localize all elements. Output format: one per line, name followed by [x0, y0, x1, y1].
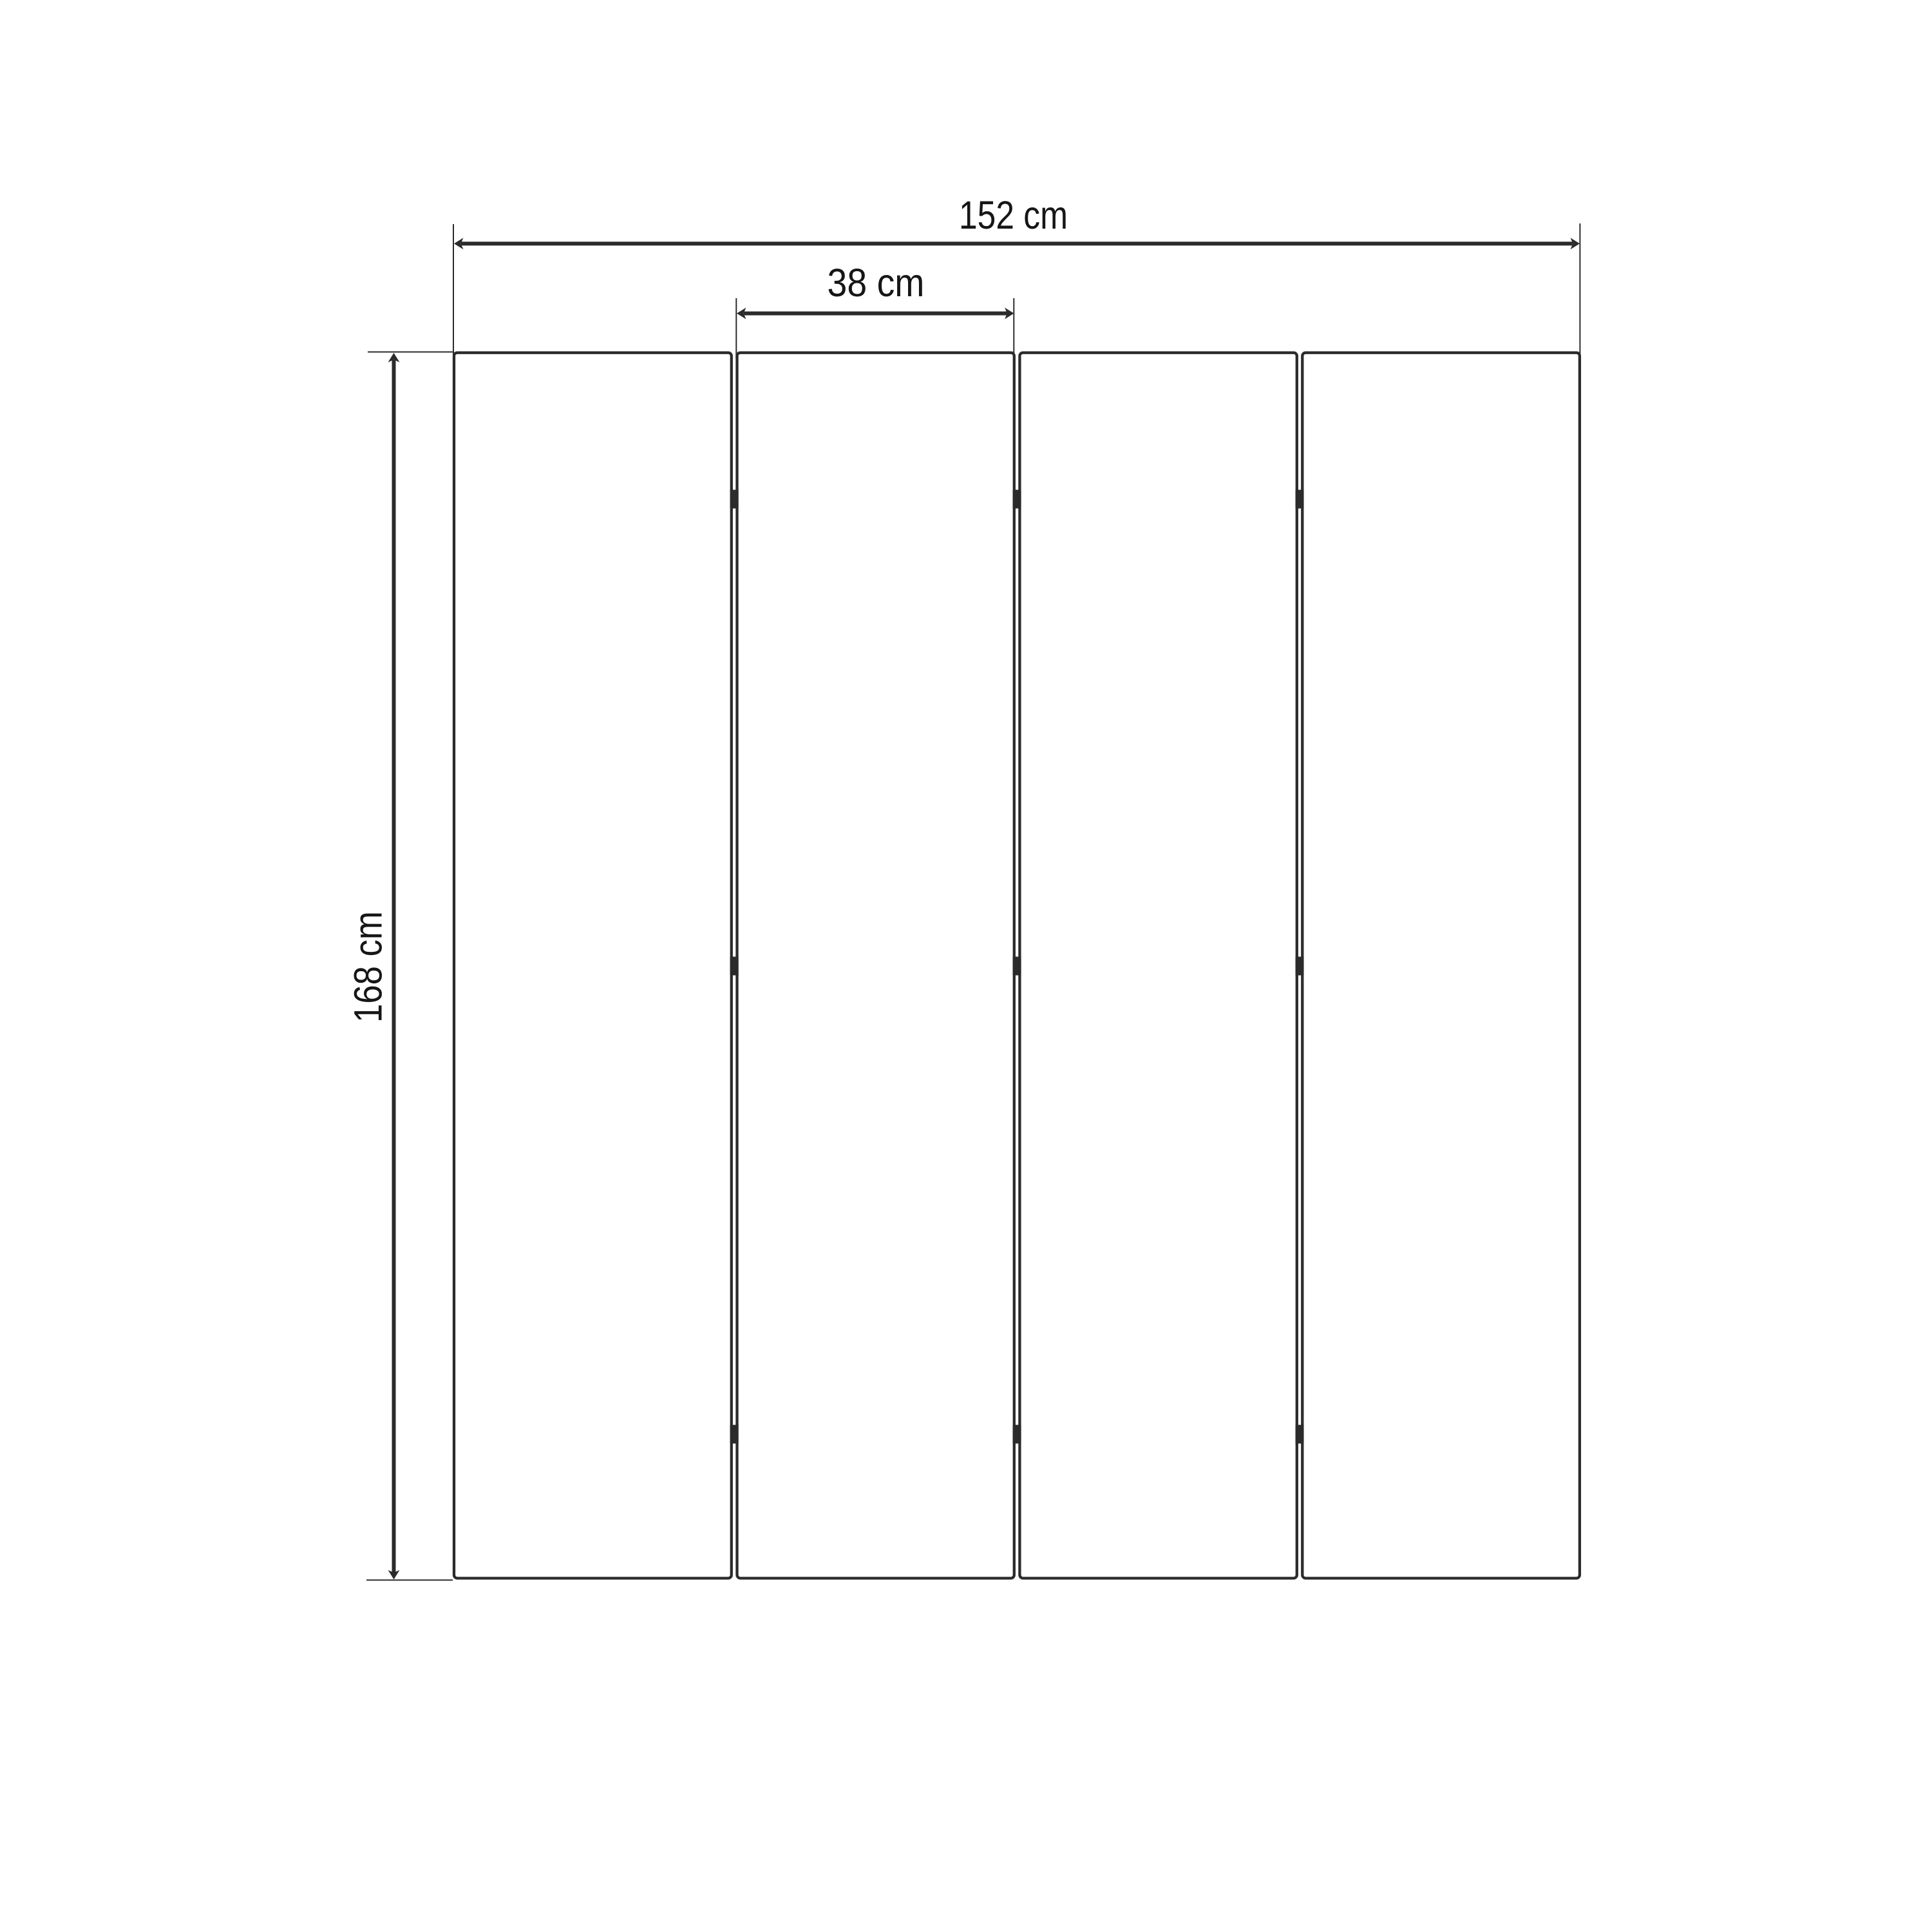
svg-text:38 cm: 38 cm — [828, 261, 925, 305]
svg-text:168 cm: 168 cm — [346, 911, 391, 1023]
svg-text:152 cm: 152 cm — [959, 193, 1068, 238]
